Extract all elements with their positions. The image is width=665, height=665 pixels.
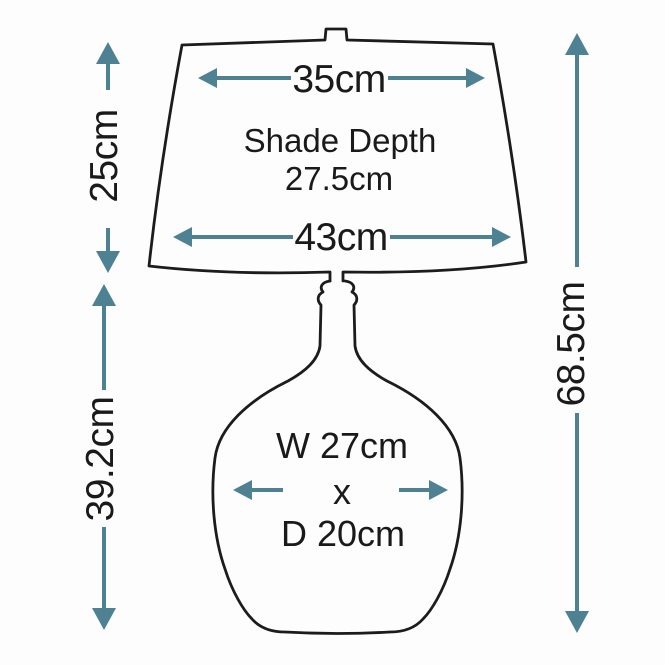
arrow-right-icon — [466, 68, 485, 88]
arrow-down-icon — [565, 611, 589, 633]
lamp-dimension-diagram: 35cm Shade Depth 27.5cm 43cm 25cm 39 — [0, 0, 665, 665]
dim-total-height: 68.5cm — [550, 33, 593, 633]
shade-depth-label: Shade Depth — [244, 122, 437, 159]
base-width-label: W 27cm — [276, 425, 408, 466]
shade-bottom-width-label: 43cm — [294, 216, 387, 259]
base-height-label: 39.2cm — [79, 397, 122, 522]
shade-height-label: 25cm — [83, 109, 126, 202]
arrow-up-icon — [565, 33, 589, 55]
diagram-canvas: 35cm Shade Depth 27.5cm 43cm 25cm 39 — [0, 0, 665, 665]
base-depth-label: D 20cm — [281, 513, 405, 554]
dim-shade-bottom-width: 43cm — [173, 216, 511, 259]
dim-shade-top-width: 35cm — [198, 58, 485, 101]
arrow-left-icon — [198, 68, 217, 88]
arrow-left-icon — [233, 480, 252, 500]
arrow-down-icon — [96, 251, 120, 273]
shade-top-width-label: 35cm — [292, 58, 385, 101]
arrow-up-icon — [96, 42, 120, 64]
shade-depth-value: 27.5cm — [285, 160, 393, 197]
shade-depth-annotation: Shade Depth 27.5cm — [244, 122, 437, 197]
dim-base-height: 39.2cm — [79, 284, 122, 630]
arrow-right-icon — [492, 227, 511, 247]
arrow-left-icon — [173, 227, 192, 247]
dim-base-width-depth: W 27cm x D 20cm — [233, 425, 448, 554]
base-dim-separator: x — [333, 471, 351, 512]
arrow-right-icon — [429, 480, 448, 500]
total-height-label: 68.5cm — [550, 282, 593, 407]
arrow-up-icon — [92, 284, 116, 306]
arrow-down-icon — [92, 608, 116, 630]
dim-shade-height: 25cm — [83, 42, 126, 273]
